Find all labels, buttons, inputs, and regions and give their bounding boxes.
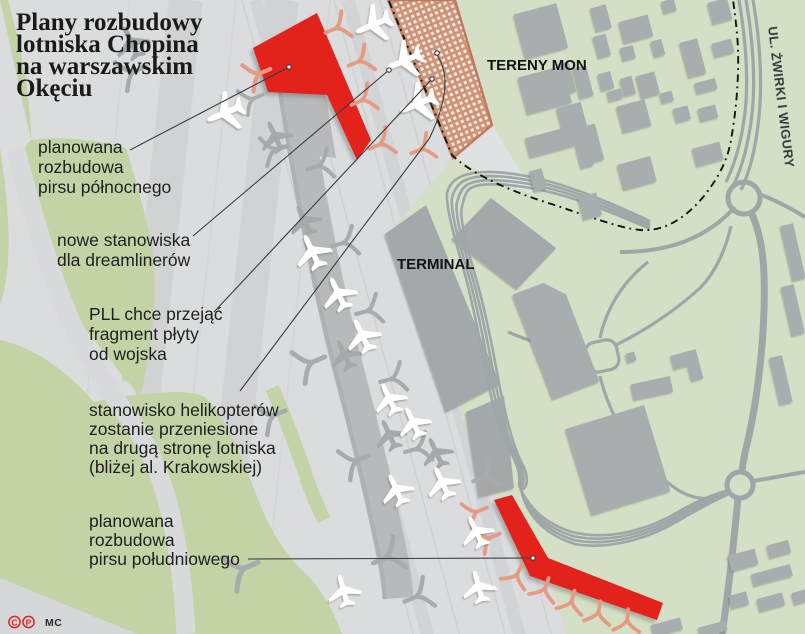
svg-text:od wojska: od wojska xyxy=(89,344,167,364)
svg-text:zostanie przeniesione: zostanie przeniesione xyxy=(89,419,258,439)
svg-text:(bliżej al. Krakowskiej): (bliżej al. Krakowskiej) xyxy=(89,457,262,477)
svg-text:P: P xyxy=(26,618,32,628)
svg-text:TERMINAL: TERMINAL xyxy=(397,256,475,273)
svg-text:C: C xyxy=(11,618,17,628)
svg-text:Okęciu: Okęciu xyxy=(16,75,92,102)
svg-text:stanowisko helikopterów: stanowisko helikopterów xyxy=(89,400,279,420)
svg-text:dla dreamlinerów: dla dreamlinerów xyxy=(57,250,191,270)
svg-text:pirsu północnego: pirsu północnego xyxy=(38,177,171,197)
svg-text:nowe stanowiska: nowe stanowiska xyxy=(57,230,191,250)
svg-text:MC: MC xyxy=(45,617,62,629)
svg-text:planowana: planowana xyxy=(89,511,174,531)
svg-text:rozbudowa: rozbudowa xyxy=(89,530,175,550)
svg-text:rozbudowa: rozbudowa xyxy=(38,157,124,177)
svg-text:na drugą stronę lotniska: na drugą stronę lotniska xyxy=(89,438,276,458)
svg-text:PLL chce przejąć: PLL chce przejąć xyxy=(89,304,223,324)
svg-text:planowana: planowana xyxy=(38,137,123,157)
svg-text:pirsu południowego: pirsu południowego xyxy=(89,549,240,569)
svg-text:TERENY MON: TERENY MON xyxy=(487,57,587,74)
svg-text:fragment płyty: fragment płyty xyxy=(89,324,199,344)
